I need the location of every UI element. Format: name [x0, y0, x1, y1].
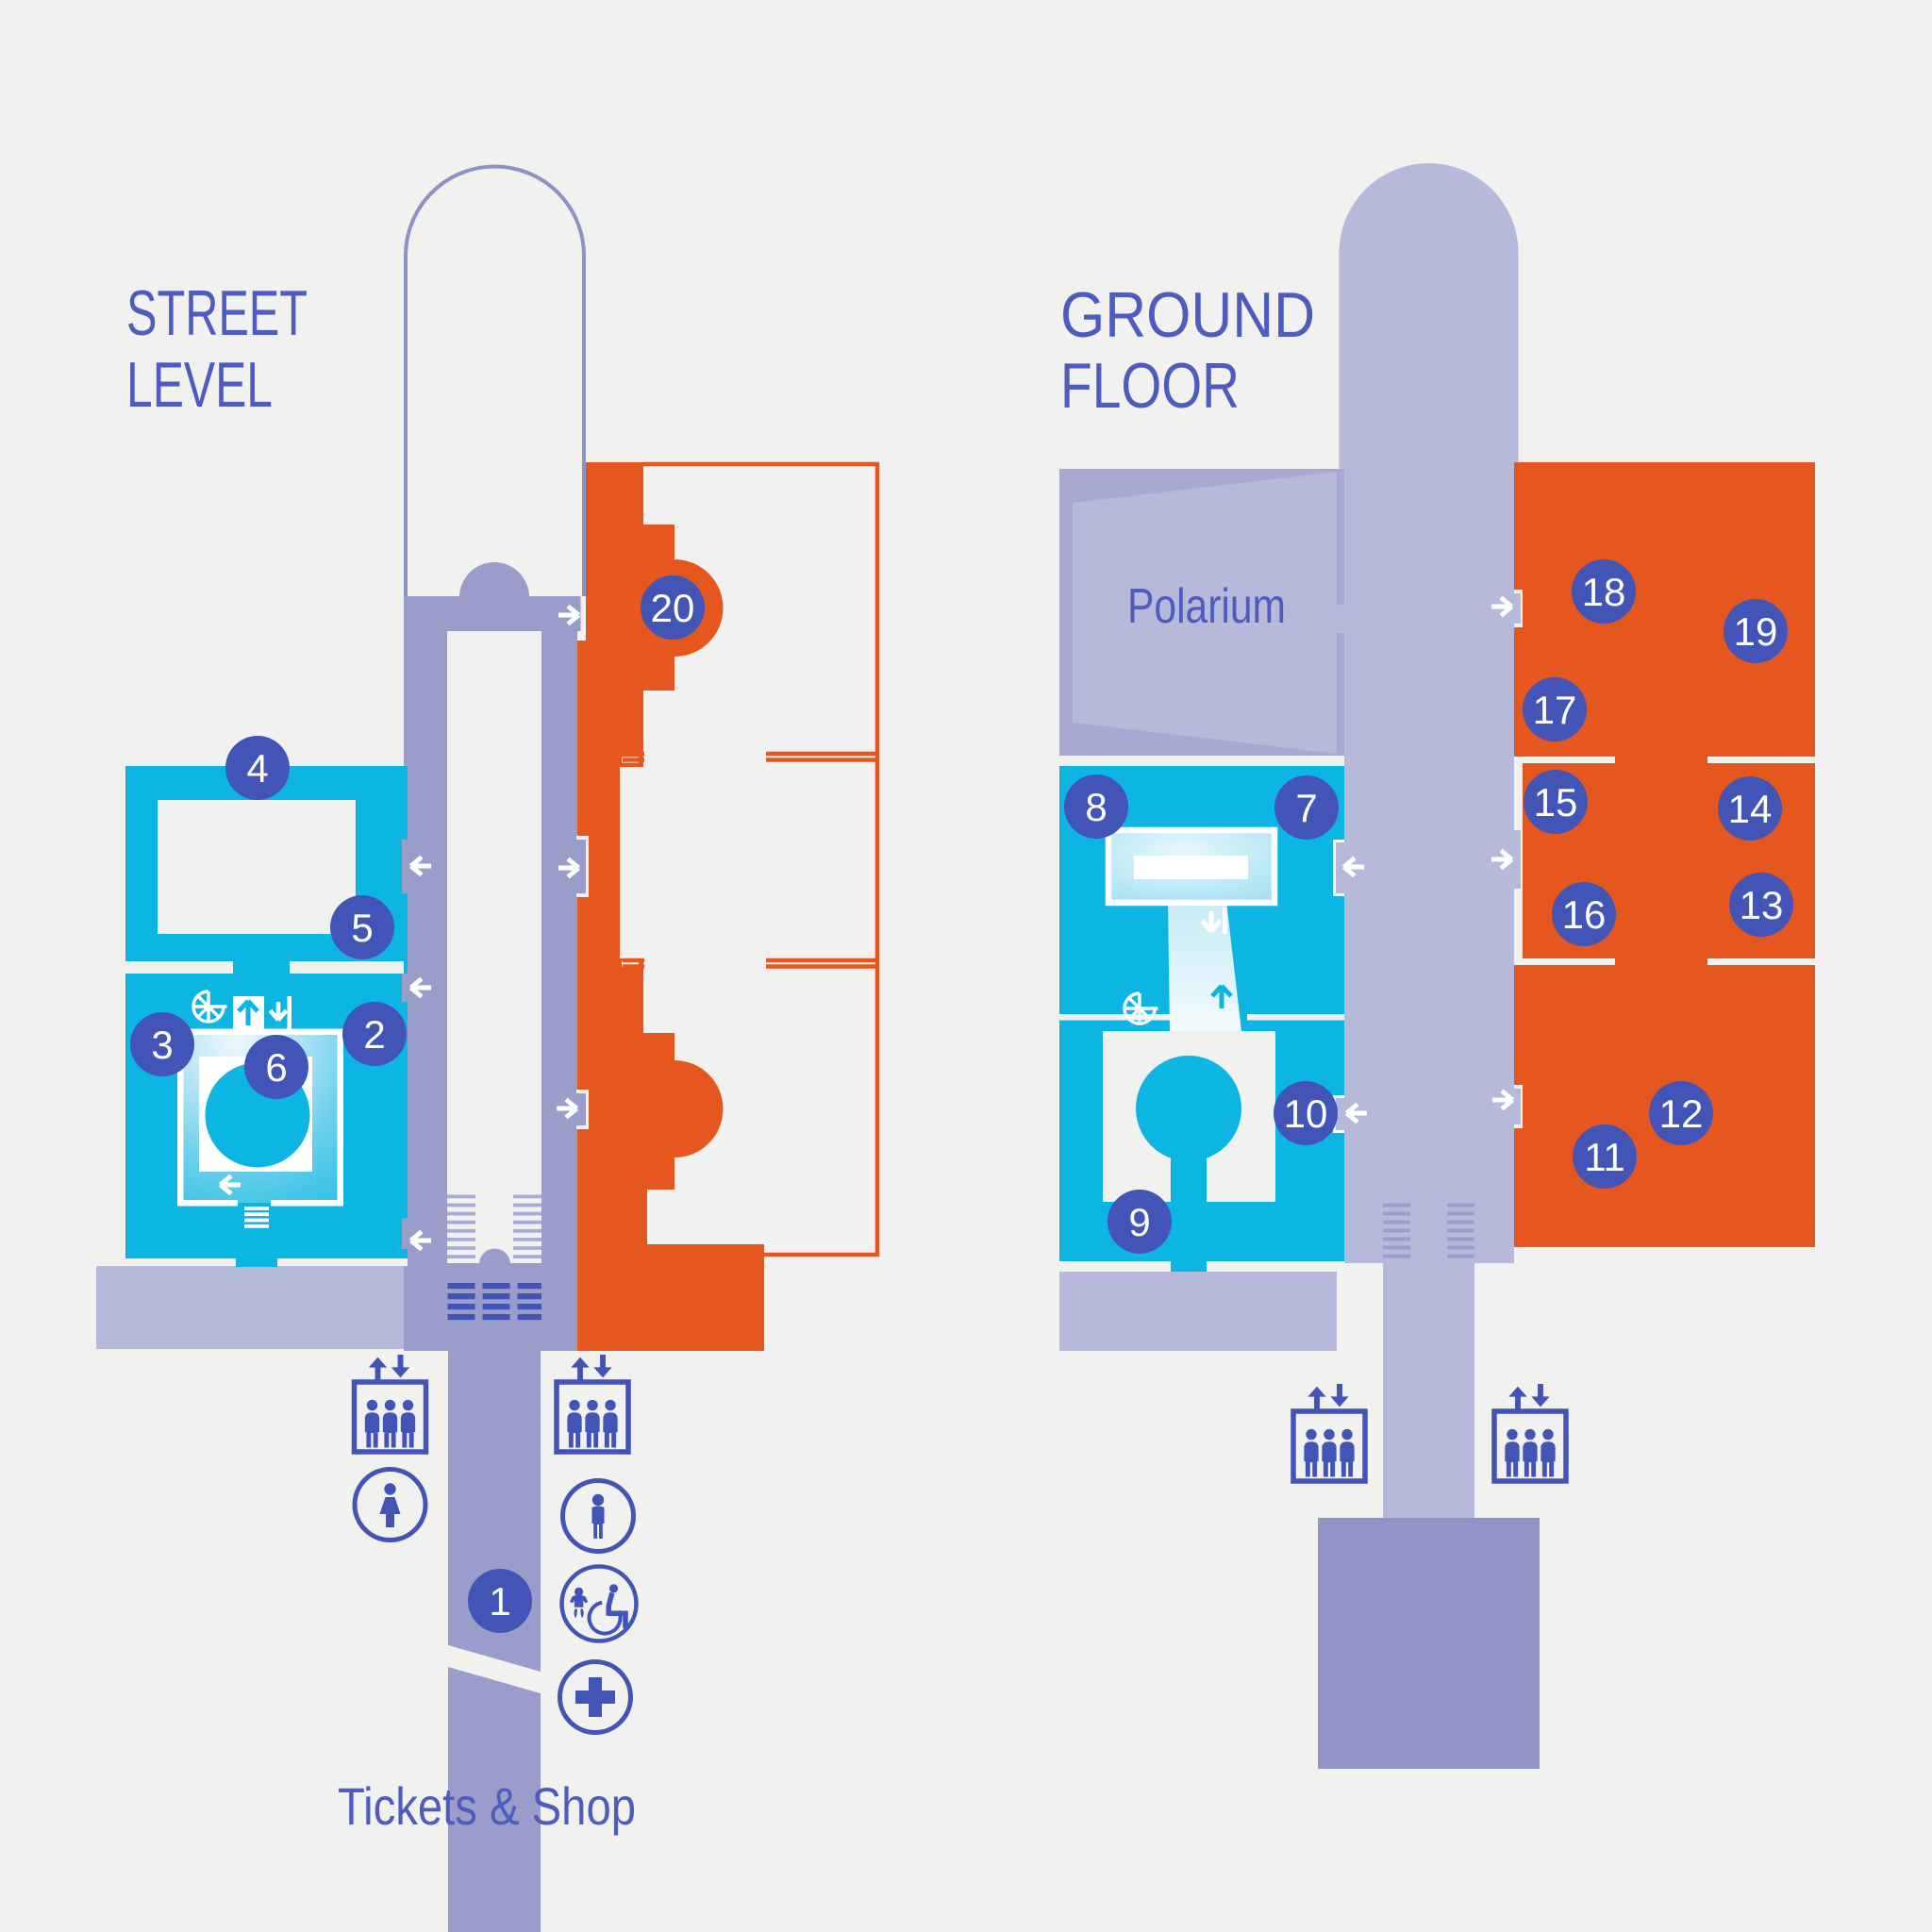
svg-text:12: 12: [1659, 1091, 1704, 1136]
svg-text:3: 3: [151, 1023, 173, 1067]
svg-text:18: 18: [1582, 570, 1626, 614]
svg-text:11: 11: [1584, 1135, 1625, 1179]
svg-text:1: 1: [489, 1579, 510, 1624]
svg-text:13: 13: [1740, 883, 1784, 927]
svg-text:STREET: STREET: [126, 277, 308, 349]
svg-text:15: 15: [1534, 780, 1578, 824]
svg-text:5: 5: [351, 906, 373, 950]
svg-text:16: 16: [1562, 892, 1607, 937]
svg-text:6: 6: [265, 1045, 287, 1090]
svg-text:7: 7: [1295, 786, 1317, 830]
svg-text:4: 4: [246, 746, 268, 791]
svg-text:Tickets & Shop: Tickets & Shop: [338, 1776, 636, 1836]
svg-text:17: 17: [1533, 688, 1577, 732]
svg-text:GROUND: GROUND: [1060, 279, 1315, 351]
svg-text:9: 9: [1128, 1200, 1150, 1244]
svg-text:14: 14: [1728, 787, 1773, 831]
svg-text:LEVEL: LEVEL: [126, 349, 273, 421]
svg-text:8: 8: [1085, 785, 1107, 829]
svg-text:19: 19: [1734, 609, 1778, 654]
svg-text:10: 10: [1284, 1091, 1328, 1136]
svg-text:2: 2: [363, 1012, 385, 1057]
svg-text:20: 20: [651, 586, 695, 630]
svg-text:FLOOR: FLOOR: [1060, 350, 1240, 422]
svg-text:Polarium: Polarium: [1127, 579, 1286, 634]
